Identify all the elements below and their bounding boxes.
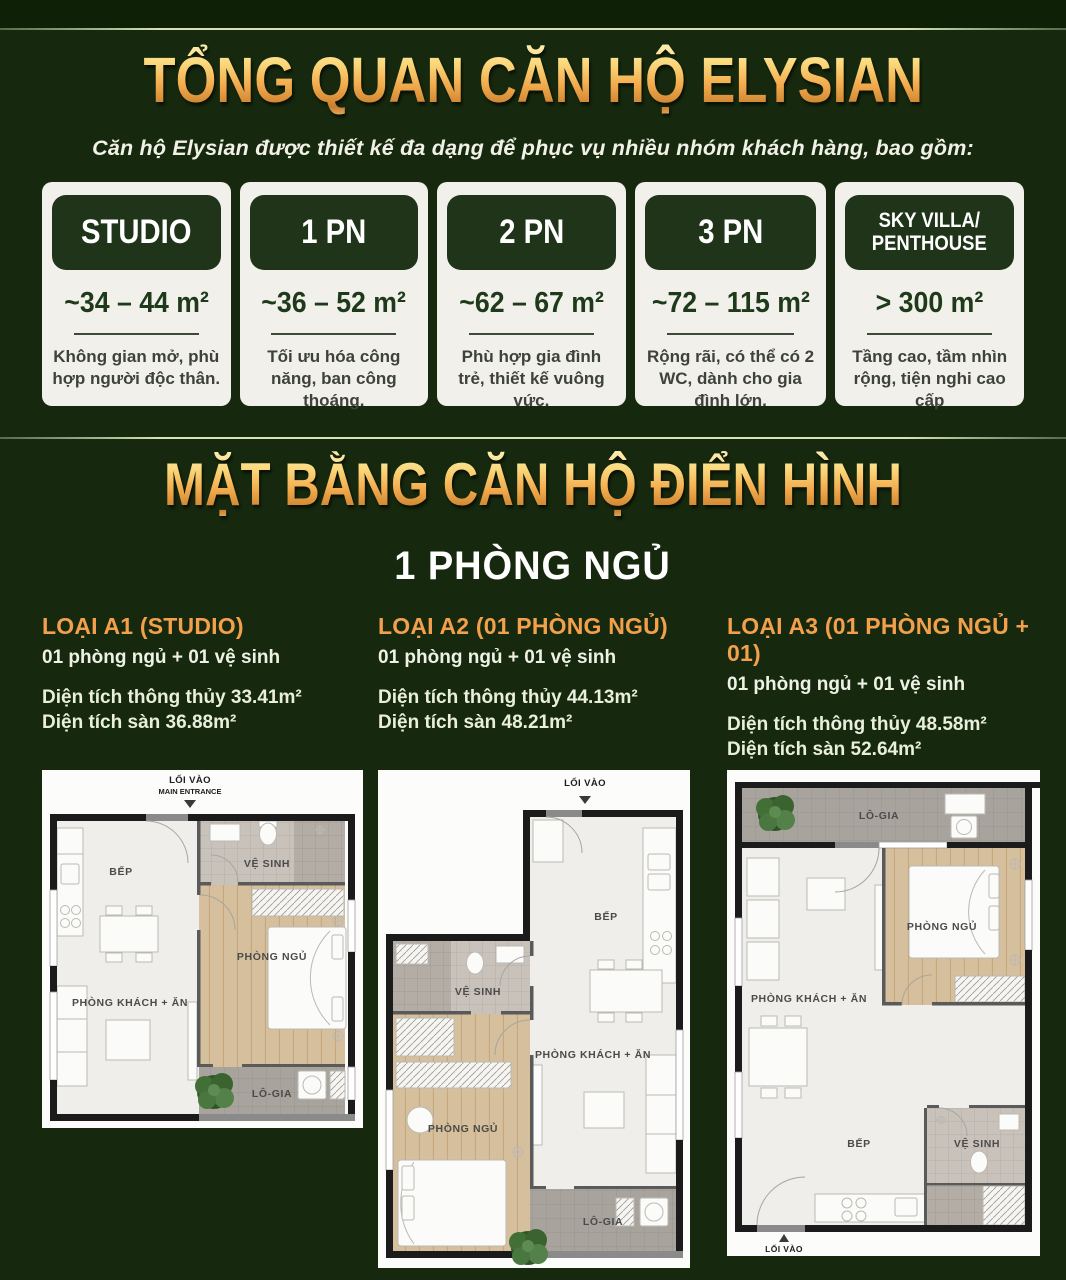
room-label-loggia: LÔ-GIA bbox=[252, 1087, 292, 1100]
room-label-loggia: LÔ-GIA bbox=[859, 809, 899, 822]
card-divider bbox=[667, 333, 794, 335]
unit-card-title: 1 PN bbox=[301, 215, 366, 251]
room-label-kitchen: BẾP bbox=[847, 1137, 870, 1150]
unit-card-title-badge: 1 PN bbox=[250, 195, 419, 270]
infographic-root: TỔNG QUAN CĂN HỘ ELYSIAN Căn hộ Elysian … bbox=[0, 0, 1066, 1280]
unit-card-title: 2 PN bbox=[499, 215, 564, 251]
plant-icon bbox=[509, 1229, 548, 1265]
unit-card-area: ~36 – 52 m² bbox=[262, 287, 407, 320]
divider-line-middle bbox=[0, 437, 1066, 439]
floorplan-a3: LỐI VÀO LÔ-GIA PHÒNG NGỦ PHÒNG KHÁCH + Ă… bbox=[727, 770, 1040, 1256]
plan-layout: 01 phòng ngủ + 01 vệ sinh bbox=[727, 674, 1040, 696]
overview-subtitle: Căn hộ Elysian được thiết kế đa dạng để … bbox=[0, 136, 1066, 161]
plan-area-gross: Diện tích sàn 52.64m² bbox=[727, 737, 1040, 763]
plan-heading: LOẠI A1 (STUDIO) bbox=[42, 613, 363, 640]
room-label-bedroom: PHÒNG NGỦ bbox=[428, 1122, 498, 1135]
unit-card-desc: Tối ưu hóa công năng, ban công thoáng. bbox=[250, 346, 419, 412]
plan-layout: 01 phòng ngủ + 01 vệ sinh bbox=[42, 647, 363, 669]
plan-area-gross: Diện tích sàn 48.21m² bbox=[378, 710, 690, 736]
room-label-kitchen: BẾP bbox=[594, 910, 617, 923]
unit-type-cards: STUDIO ~34 – 44 m² Không gian mở, phù hợ… bbox=[42, 182, 1024, 406]
room-label-bathroom: VỆ SINH bbox=[455, 985, 501, 998]
unit-card-title-badge: 2 PN bbox=[447, 195, 616, 270]
overview-section: TỔNG QUAN CĂN HỘ ELYSIAN Căn hộ Elysian … bbox=[0, 40, 1066, 406]
unit-card-title: 3 PN bbox=[698, 215, 763, 251]
room-label-bedroom: PHÒNG NGỦ bbox=[907, 920, 977, 933]
floorplan-a1: LỐI VÀO MAIN ENTRANCE bbox=[42, 770, 363, 1128]
room-label-kitchen: BẾP bbox=[109, 865, 132, 878]
floorplan-a2: LỐI VÀO bbox=[378, 770, 690, 1268]
unit-card-desc: Không gian mở, phù hợp người độc thân. bbox=[52, 346, 221, 390]
room-label-bathroom: VỆ SINH bbox=[244, 857, 290, 870]
entrance-label-vi: LỐI VÀO bbox=[169, 774, 211, 786]
card-divider bbox=[74, 333, 199, 335]
plant-icon bbox=[195, 1073, 234, 1109]
room-label-bathroom: VỆ SINH bbox=[954, 1137, 1000, 1150]
top-band bbox=[0, 0, 1066, 28]
floorplan-subtitle: 1 PHÒNG NGỦ bbox=[395, 544, 671, 589]
entrance-label-en: MAIN ENTRANCE bbox=[159, 787, 222, 796]
plan-layout: 01 phòng ngủ + 01 vệ sinh bbox=[378, 647, 690, 669]
card-divider bbox=[271, 333, 396, 335]
floorplan-section: MẶT BẰNG CĂN HỘ ĐIỂN HÌNH 1 PHÒNG NGỦ LO… bbox=[0, 447, 1066, 1268]
room-label-living: PHÒNG KHÁCH + ĂN bbox=[751, 992, 867, 1005]
divider-line-top bbox=[0, 28, 1066, 30]
plan-drawing-row: LỐI VÀO MAIN ENTRANCE bbox=[42, 770, 1066, 1268]
plan-area-net: Diện tích thông thủy 48.58m² bbox=[727, 712, 1040, 738]
unit-card-area: ~62 – 67 m² bbox=[459, 287, 604, 320]
plan-area-gross: Diện tích sàn 36.88m² bbox=[42, 710, 363, 736]
unit-card-studio: STUDIO ~34 – 44 m² Không gian mở, phù hợ… bbox=[42, 182, 231, 406]
unit-card-1pn: 1 PN ~36 – 52 m² Tối ưu hóa công năng, b… bbox=[240, 182, 429, 406]
plan-info-a1: LOẠI A1 (STUDIO) 01 phòng ngủ + 01 vệ si… bbox=[42, 613, 363, 736]
room-label-living: PHÒNG KHÁCH + ĂN bbox=[72, 996, 188, 1009]
unit-card-title-badge: SKY VILLA/ PENTHOUSE bbox=[845, 195, 1014, 270]
entrance-label-vi: LỐI VÀO bbox=[765, 1243, 803, 1254]
unit-card-desc: Phù hợp gia đình trẻ, thiết kế vuông vức… bbox=[447, 346, 616, 412]
plan-info-a2: LOẠI A2 (01 PHÒNG NGỦ) 01 phòng ngủ + 01… bbox=[378, 613, 690, 736]
plant-icon bbox=[756, 795, 795, 831]
unit-card-title-badge: STUDIO bbox=[52, 195, 221, 270]
unit-card-skyvilla: SKY VILLA/ PENTHOUSE > 300 m² Tầng cao, … bbox=[835, 182, 1024, 406]
plan-heading: LOẠI A2 (01 PHÒNG NGỦ) bbox=[378, 613, 690, 640]
plan-info-a3: LOẠI A3 (01 PHÒNG NGỦ + 01) 01 phòng ngủ… bbox=[727, 613, 1040, 763]
plan-info-row: LOẠI A1 (STUDIO) 01 phòng ngủ + 01 vệ si… bbox=[42, 613, 1066, 763]
plan-area-net: Diện tích thông thủy 44.13m² bbox=[378, 685, 690, 711]
overview-title: TỔNG QUAN CĂN HỘ ELYSIAN bbox=[143, 40, 922, 122]
unit-card-title-badge: 3 PN bbox=[645, 195, 817, 270]
room-label-loggia: LÔ-GIA bbox=[583, 1215, 623, 1228]
unit-card-area: ~72 – 115 m² bbox=[652, 287, 810, 320]
unit-card-desc: Rộng rãi, có thể có 2 WC, dành cho gia đ… bbox=[646, 346, 816, 412]
unit-card-desc: Tầng cao, tầm nhìn rộng, tiện nghi cao c… bbox=[845, 346, 1014, 412]
unit-card-title: STUDIO bbox=[81, 215, 191, 251]
floorplan-title: MẶT BẰNG CĂN HỘ ĐIỂN HÌNH bbox=[164, 447, 902, 524]
unit-card-2pn: 2 PN ~62 – 67 m² Phù hợp gia đình trẻ, t… bbox=[437, 182, 626, 406]
unit-card-area: > 300 m² bbox=[876, 287, 984, 320]
unit-card-title: SKY VILLA/ PENTHOUSE bbox=[861, 209, 999, 256]
card-divider bbox=[867, 333, 992, 335]
room-label-bedroom: PHÒNG NGỦ bbox=[237, 950, 307, 963]
unit-card-area: ~34 – 44 m² bbox=[64, 287, 209, 320]
plan-area-net: Diện tích thông thủy 33.41m² bbox=[42, 685, 363, 711]
room-label-living: PHÒNG KHÁCH + ĂN bbox=[535, 1048, 651, 1061]
plan-heading: LOẠI A3 (01 PHÒNG NGỦ + 01) bbox=[727, 613, 1040, 667]
unit-card-3pn: 3 PN ~72 – 115 m² Rộng rãi, có thể có 2 … bbox=[635, 182, 827, 406]
entrance-label-vi: LỐI VÀO bbox=[564, 777, 606, 789]
card-divider bbox=[469, 333, 594, 335]
